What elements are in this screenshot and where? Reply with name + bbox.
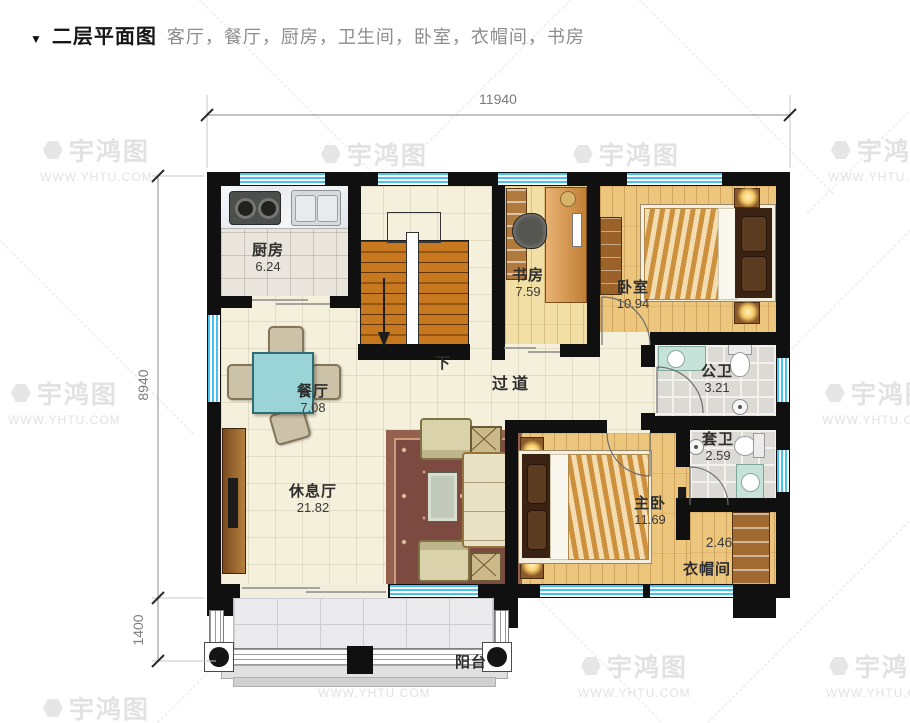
desk-lamp	[560, 191, 576, 207]
wall-ensuite-bottom	[676, 498, 790, 512]
window	[777, 358, 789, 402]
basin	[741, 473, 760, 492]
page-subtitle: 客厅，餐厅，厨房，卫生间，卧室，衣帽间，书房	[167, 23, 585, 49]
stairs-down-label: 下	[435, 356, 451, 373]
bed	[518, 450, 652, 564]
page-title: 二层平面图	[52, 20, 157, 49]
bed-blanket	[644, 208, 720, 300]
burner	[258, 198, 279, 219]
pillow	[741, 216, 767, 252]
window	[540, 585, 643, 597]
bed-pillow-zone	[522, 454, 550, 558]
room-label-bedroom: 卧室10.94	[617, 280, 650, 311]
wall-stair-study	[492, 186, 505, 360]
room-label-dining: 餐厅7.08	[297, 384, 329, 415]
pillow	[741, 256, 767, 292]
wall-stair-bottom	[358, 344, 470, 360]
pillow	[527, 464, 547, 504]
wall-kitchen-right	[348, 186, 361, 308]
wall-master-top	[650, 420, 690, 433]
balcony-floor	[233, 598, 494, 650]
watermark: 宇鸿图 WWW.YHTU.COM	[822, 375, 910, 427]
side-table	[470, 552, 502, 582]
watermark: 宇鸿图 WWW.YHTU.COM	[828, 132, 910, 184]
room-label-cloakroom: 衣帽间	[683, 562, 731, 579]
bathroom-vanity	[736, 464, 764, 500]
wall-study-bottom	[560, 344, 600, 357]
dimension-width-total: 11940	[463, 91, 533, 107]
kitchen-sink	[291, 190, 341, 226]
bed-sheet	[550, 454, 570, 560]
watermark: 宇鸿图 WWW.YHTU.COM	[40, 690, 153, 723]
watermark-logo-icon	[829, 656, 849, 676]
cloakroom-wardrobe	[732, 512, 770, 588]
window	[208, 315, 220, 402]
wall-study-bedroom	[587, 186, 600, 344]
sink-basin	[317, 195, 338, 222]
pillow	[527, 510, 547, 550]
window	[650, 585, 733, 597]
page-header: ▼ 二层平面图 客厅，餐厅，厨房，卫生间，卧室，衣帽间，书房	[30, 20, 585, 49]
wall-kitchen-bottom	[221, 296, 252, 308]
watermark: 宇鸿图 WWW.YHTU.COM	[578, 648, 691, 700]
watermark-logo-icon	[573, 144, 593, 164]
window	[378, 173, 448, 185]
burner	[235, 198, 256, 219]
dimension-height-main: 8940	[135, 355, 151, 415]
room-label-ensuite: 套卫2.59	[702, 432, 734, 463]
watermark: 宇鸿图 WWW.YHTU.COM	[40, 132, 153, 184]
watermark-logo-icon	[825, 383, 845, 403]
balcony-door-opening	[240, 584, 388, 598]
tv	[228, 478, 238, 528]
wall-master-left	[505, 420, 518, 584]
nightstand	[734, 188, 760, 208]
stair-stringer	[406, 232, 419, 346]
room-label-master-bedroom: 主卧11.69	[634, 496, 666, 527]
room-label-cloakroom-area: 2.46	[706, 535, 732, 550]
window	[240, 173, 325, 185]
coffee-table	[427, 472, 458, 522]
toilet-tank	[753, 433, 765, 458]
room-label-study: 书房7.59	[512, 268, 544, 299]
watermark: 宇鸿图 WWW.YHTU.COM	[8, 375, 121, 427]
header-marker-icon: ▼	[30, 32, 42, 46]
window	[627, 173, 722, 185]
balcony-column	[204, 642, 234, 672]
wall-master-top	[505, 420, 607, 433]
shower-drain-icon	[732, 399, 748, 415]
room-label-balcony: 阳台	[455, 655, 487, 672]
room-label-kitchen: 厨房6.24	[252, 243, 284, 274]
room-label-lounge: 休息厅21.82	[289, 484, 337, 515]
wall-study-bottom	[492, 344, 504, 357]
wall-public-bath-left	[641, 345, 655, 367]
window	[777, 450, 789, 492]
balcony-ledge	[233, 677, 496, 687]
wall-pier	[733, 584, 776, 618]
desk-monitor	[572, 213, 582, 247]
sofa	[462, 452, 508, 548]
bathroom-vanity	[658, 346, 706, 371]
floorplan-page: 宇鸿图 WWW.YHTU.COM 宇鸿图 WWW.YHTU.COM 宇鸿图 WW…	[0, 0, 910, 723]
watermark-logo-icon	[43, 698, 63, 718]
watermark-logo-icon	[831, 140, 851, 160]
wall-cloakroom-stub	[676, 505, 690, 540]
window	[390, 585, 478, 597]
watermark-logo-icon	[43, 140, 63, 160]
wall-ensuite-left	[676, 430, 690, 467]
wall-kitchen-bottom	[330, 296, 361, 308]
bed	[640, 204, 776, 302]
dimension-height-balcony: 1400	[130, 600, 146, 660]
watermark-logo-icon	[11, 383, 31, 403]
window	[498, 173, 567, 185]
sink-basin	[295, 195, 316, 222]
basin	[667, 350, 685, 368]
watermark-logo-icon	[321, 144, 341, 164]
wall-bedroom-bottom	[650, 332, 790, 345]
room-label-public-bath: 公卫3.21	[701, 364, 733, 395]
stove	[229, 191, 281, 225]
balcony-center-post	[347, 646, 373, 674]
watermark: 宇鸿图 WWW.YHTU.COM	[826, 648, 910, 700]
bed-pillow-zone	[735, 208, 772, 298]
nightstand	[734, 302, 760, 324]
watermark-logo-icon	[581, 656, 601, 676]
room-label-hallway: 过道	[492, 376, 532, 394]
office-chair	[512, 213, 547, 249]
